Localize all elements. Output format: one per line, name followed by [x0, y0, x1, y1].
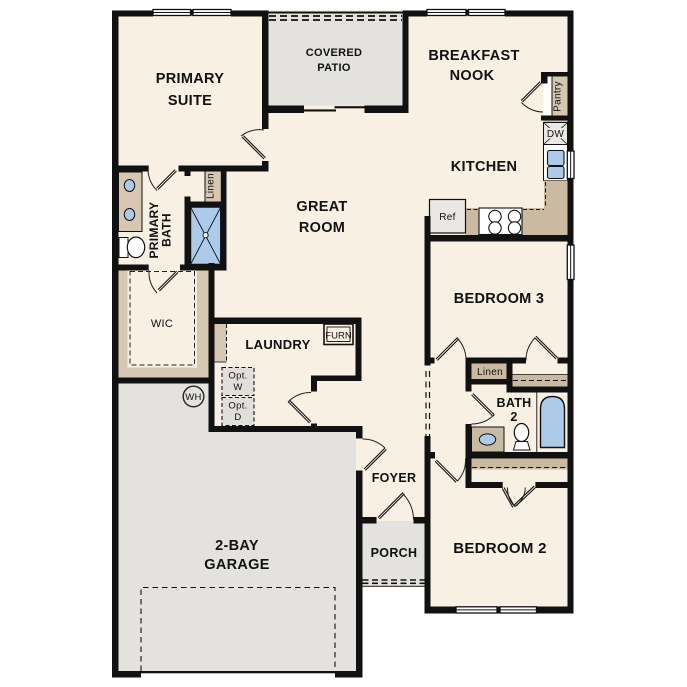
svg-text:PRIMARY: PRIMARY — [156, 71, 224, 87]
svg-text:Linen: Linen — [206, 173, 217, 199]
svg-text:W: W — [233, 382, 242, 393]
svg-text:SUITE: SUITE — [168, 93, 212, 109]
svg-text:PATIO: PATIO — [317, 62, 351, 74]
svg-text:NOOK: NOOK — [450, 68, 495, 84]
svg-text:ROOM: ROOM — [299, 220, 345, 236]
svg-text:D: D — [234, 412, 241, 423]
svg-text:WH: WH — [185, 392, 201, 403]
svg-text:FURN: FURN — [325, 331, 352, 342]
svg-text:DW: DW — [547, 129, 565, 140]
svg-text:BATH: BATH — [160, 213, 174, 247]
svg-text:BATH: BATH — [497, 396, 532, 410]
svg-text:Pantry: Pantry — [553, 81, 564, 112]
svg-text:KITCHEN: KITCHEN — [451, 159, 518, 175]
svg-text:WIC: WIC — [151, 318, 173, 330]
svg-text:FOYER: FOYER — [372, 471, 417, 485]
svg-text:BEDROOM 3: BEDROOM 3 — [454, 291, 545, 307]
svg-text:GREAT: GREAT — [296, 199, 347, 215]
svg-text:Ref: Ref — [439, 212, 455, 223]
svg-text:Opt.: Opt. — [228, 401, 247, 412]
svg-text:Opt.: Opt. — [228, 371, 247, 382]
svg-text:BREAKFAST: BREAKFAST — [428, 48, 519, 64]
svg-text:LAUNDRY: LAUNDRY — [245, 337, 310, 352]
svg-text:2-BAY: 2-BAY — [215, 538, 259, 554]
svg-text:COVERED: COVERED — [306, 47, 363, 59]
svg-text:BEDROOM 2: BEDROOM 2 — [453, 540, 547, 557]
svg-text:GARAGE: GARAGE — [204, 557, 269, 573]
svg-text:PORCH: PORCH — [371, 546, 418, 560]
svg-text:Linen: Linen — [477, 367, 503, 378]
svg-text:2: 2 — [510, 410, 517, 424]
